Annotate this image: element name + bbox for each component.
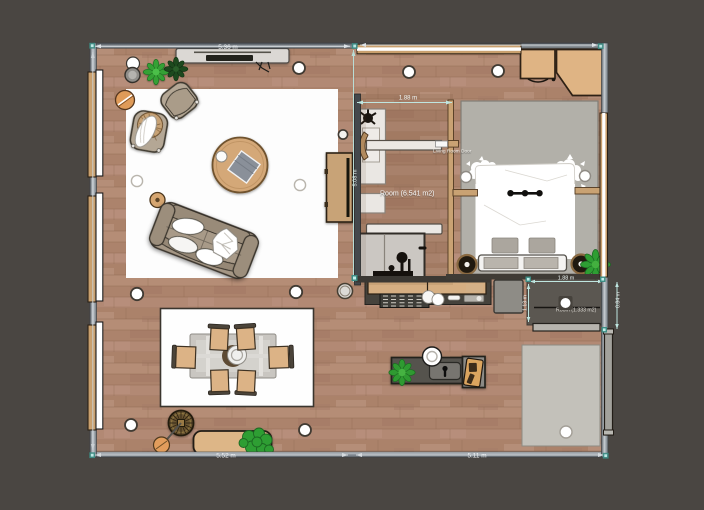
svg-text:0.84 m: 0.84 m: [616, 292, 622, 308]
svg-text:1.88 m: 1.88 m: [399, 96, 417, 102]
svg-text:Living Room Door: Living Room Door: [433, 149, 472, 155]
svg-text:1.13 m: 1.13 m: [523, 295, 529, 311]
svg-text:5.11 m: 5.11 m: [467, 453, 486, 460]
svg-text:5.08 m: 5.08 m: [353, 169, 359, 186]
svg-text:5.52 m: 5.52 m: [216, 453, 236, 460]
svg-text:1.88 m: 1.88 m: [558, 276, 575, 282]
svg-text:Room (6.541 m2): Room (6.541 m2): [380, 191, 434, 198]
svg-text:5.36 m: 5.36 m: [218, 44, 238, 51]
